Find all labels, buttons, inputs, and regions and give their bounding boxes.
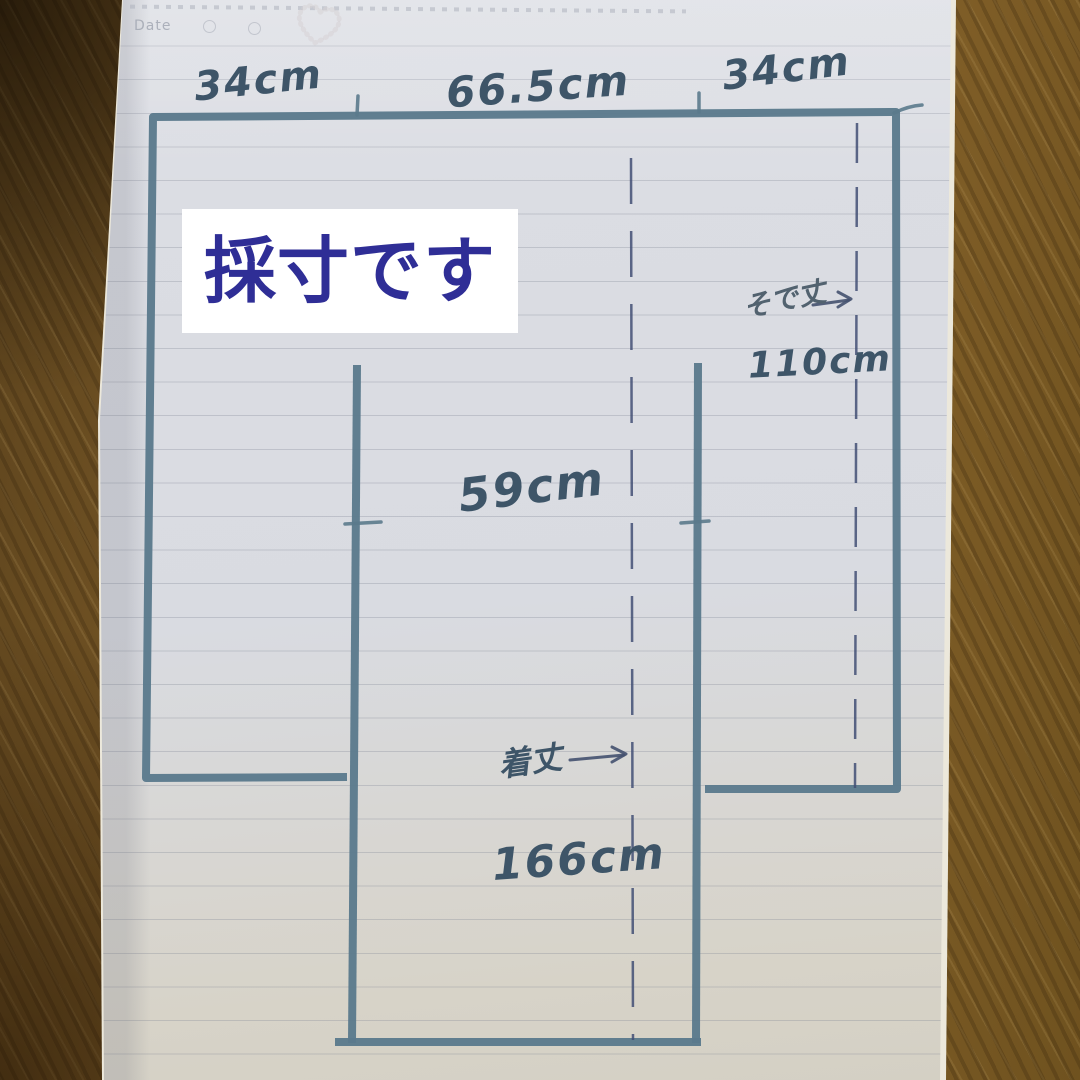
caption-overlay: 採寸です [182,209,518,333]
sleeve-dashed-line [855,123,857,788]
width-tick-left [345,522,381,524]
caption-title: 採寸です [204,235,496,307]
body-length-arrow [570,747,626,762]
body-panel-left-line [352,365,357,1043]
garment-measurement-sketch [0,0,1080,1080]
body-panel-right-line [696,363,698,1043]
width-tick-right [681,521,709,523]
value-sleeve-length: 110cm [747,338,893,386]
top-tick-left [357,96,358,115]
photo-of-measurement-sketch: Date 34cm 66.5c [0,0,1080,1080]
center-fold-dashed-line [631,158,633,1040]
label-body-length: 着丈 [495,732,565,786]
